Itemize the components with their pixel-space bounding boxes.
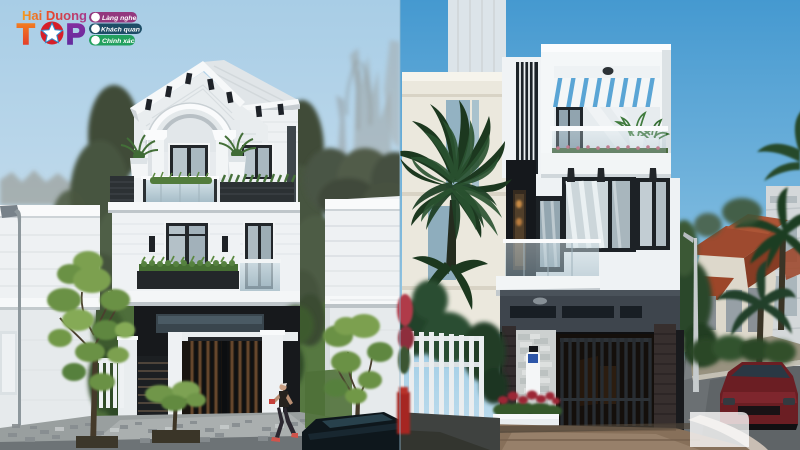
svg-text:Chính xác: Chính xác (102, 38, 135, 45)
svg-text:Làng nghe: Làng nghe (102, 15, 137, 22)
svg-text:T: T (17, 19, 35, 51)
svg-text:P: P (66, 19, 85, 51)
svg-text:Khách quan: Khách quan (101, 27, 140, 34)
